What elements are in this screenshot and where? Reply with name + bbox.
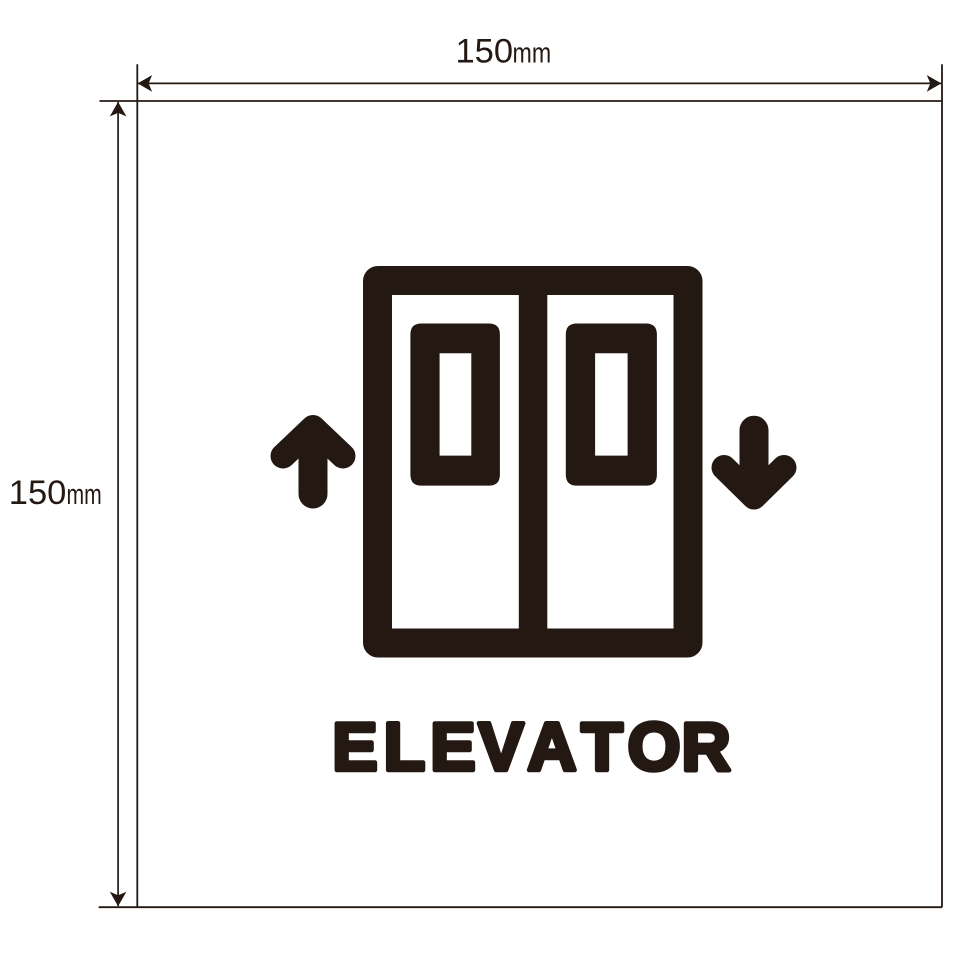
svg-text:mm: mm: [513, 36, 552, 69]
svg-text:150: 150: [9, 474, 67, 512]
svg-text:ELEVATOR: ELEVATOR: [332, 709, 730, 785]
svg-text:150: 150: [456, 33, 514, 71]
svg-text:mm: mm: [67, 479, 102, 511]
